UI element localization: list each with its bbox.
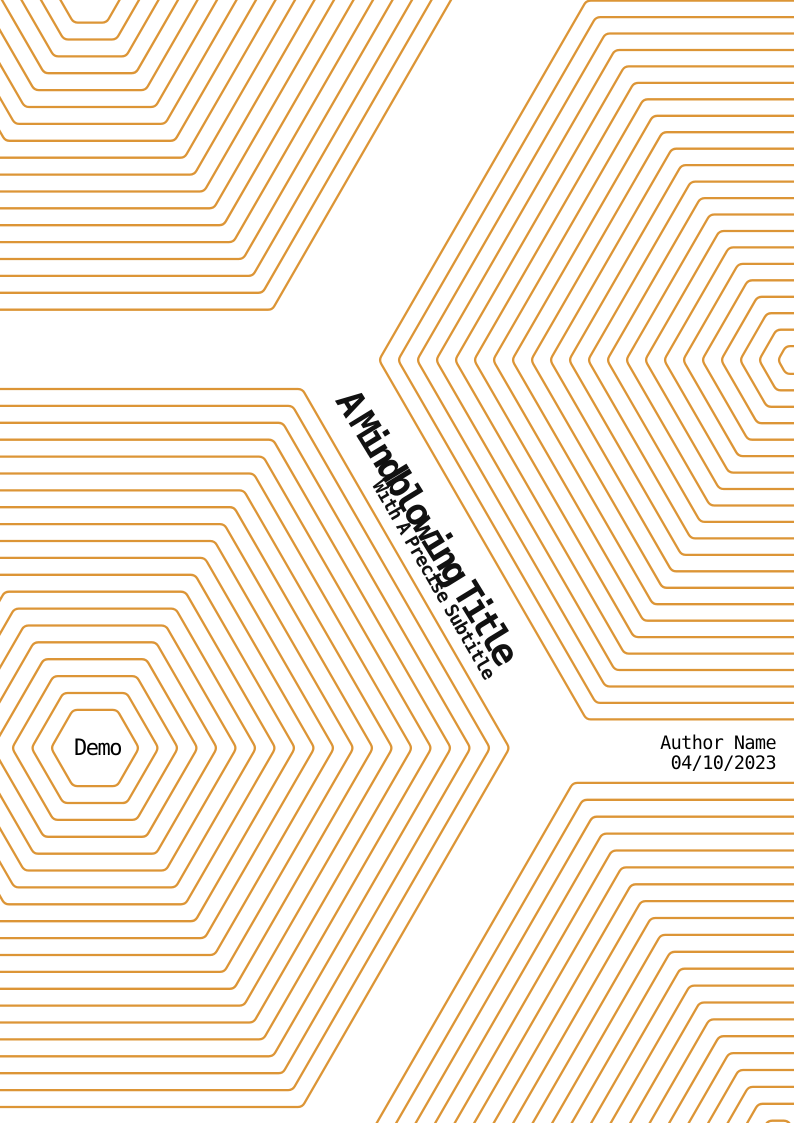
hexagon-pattern	[0, 0, 794, 1123]
hexagon-group-bottom-right	[369, 783, 794, 1123]
author-name: Author Name	[660, 734, 776, 754]
hexagon-group-top-left	[0, 0, 453, 310]
demo-badge: Demo	[50, 737, 145, 761]
document-title-page: A Mindblowing Title With A Precise Subti…	[0, 0, 794, 1123]
author-block: Author Name 04/10/2023	[660, 734, 776, 773]
document-date: 04/10/2023	[660, 754, 776, 774]
